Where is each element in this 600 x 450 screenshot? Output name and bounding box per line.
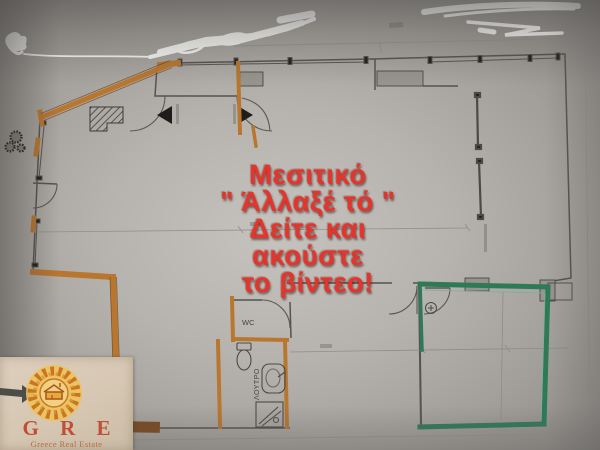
bathroom-label: ΛΟΥΤΡΟ [254,368,261,400]
whiteout-scribble [6,5,578,57]
logo-tagline: Greece Real Estate [0,439,133,449]
gre-sun-emblem [26,365,82,421]
floorplan-photo: WC ΛΟΥΤΡΟ Μεσιτικό " Άλλαξέ τό " [0,0,600,450]
toilet-bowl-icon [237,350,251,370]
circle-symbol-icon [426,303,437,314]
wc-label: WC [242,318,255,327]
marketing-line-3: Δείτε και [158,215,458,242]
gre-logo: G R E Greece Real Estate [0,357,133,450]
gear-doodle-icon [6,132,25,152]
toilet-tank-icon [237,343,251,350]
marketing-line-4: ακούστε [158,242,458,269]
sink-icon [262,364,285,393]
green-highlight-walls [420,284,548,427]
logo-acronym: G R E [0,416,133,441]
marketing-line-2: " Άλλαξέ τό " [158,188,458,215]
green-wall-edges [422,290,545,421]
marketing-line-1: Μεσιτικό [158,161,458,188]
hatched-column [90,107,123,131]
partition-walls [475,93,483,219]
bathroom-fixtures [237,343,285,427]
marketing-overlay: Μεσιτικό " Άλλαξέ τό " Δείτε και ακούστε… [158,161,458,296]
marketing-line-5: το βίντεο! [158,269,458,296]
